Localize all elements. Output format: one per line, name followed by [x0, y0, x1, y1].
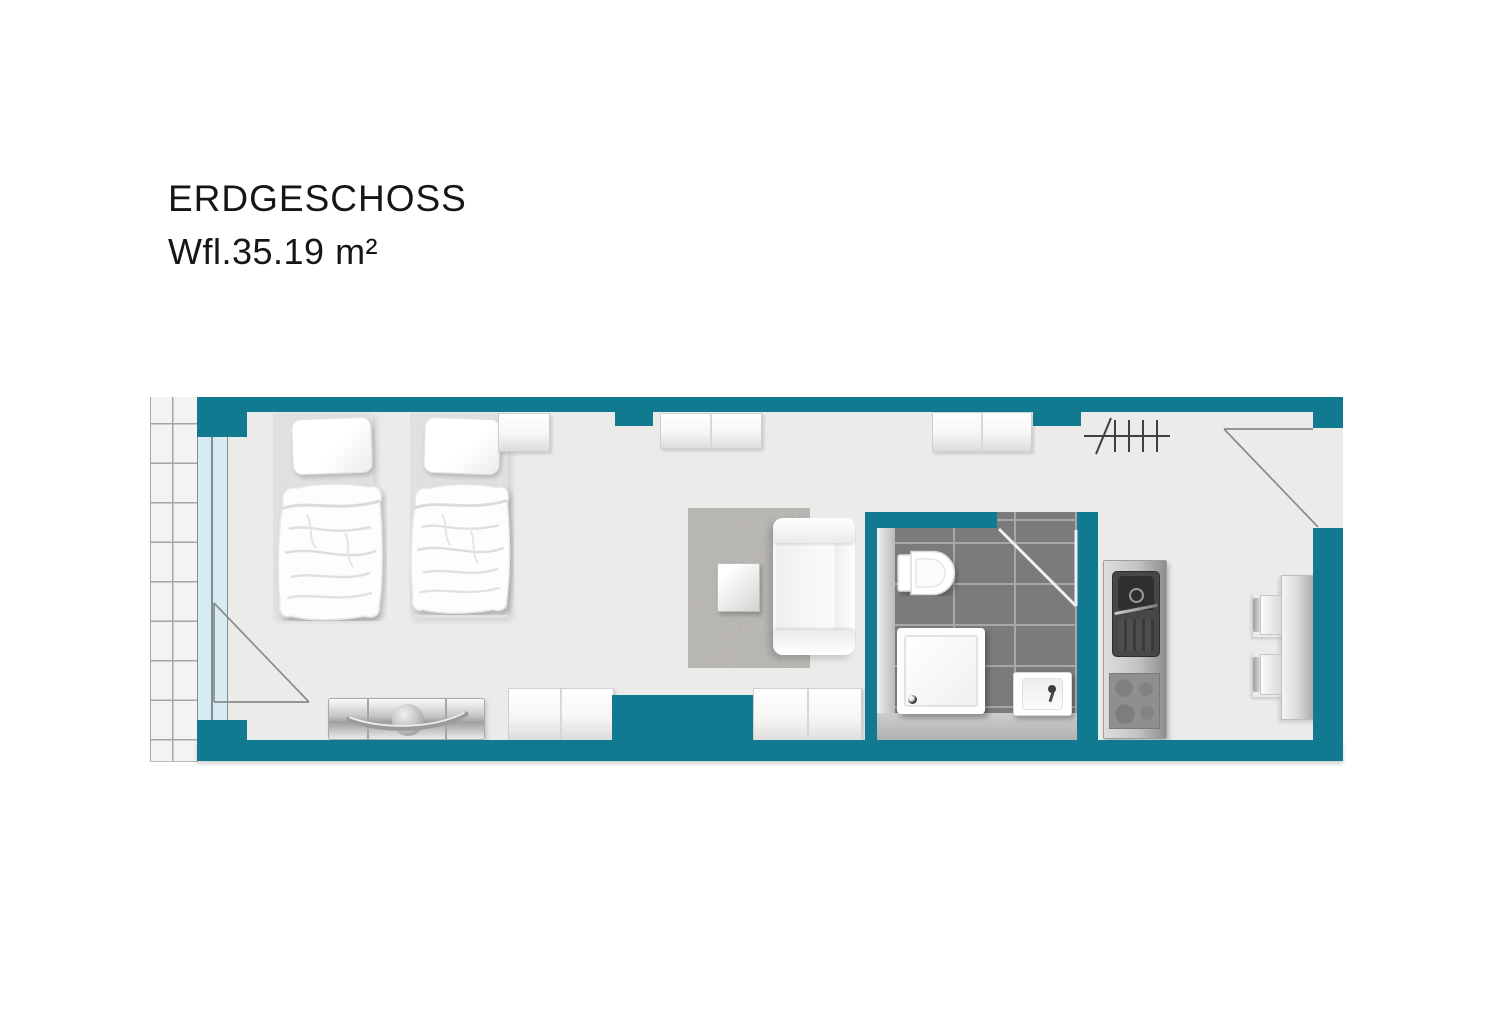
- window-door-swing: [214, 603, 309, 702]
- entry-door-swing: [1224, 429, 1318, 527]
- floorplan-canvas: ERDGESCHOSS Wfl.35.19 m²: [0, 0, 1500, 1020]
- bathroom-door-swing: [999, 529, 1076, 606]
- radiator-icon: [1084, 418, 1170, 454]
- symbols-overlay: [0, 0, 1500, 1020]
